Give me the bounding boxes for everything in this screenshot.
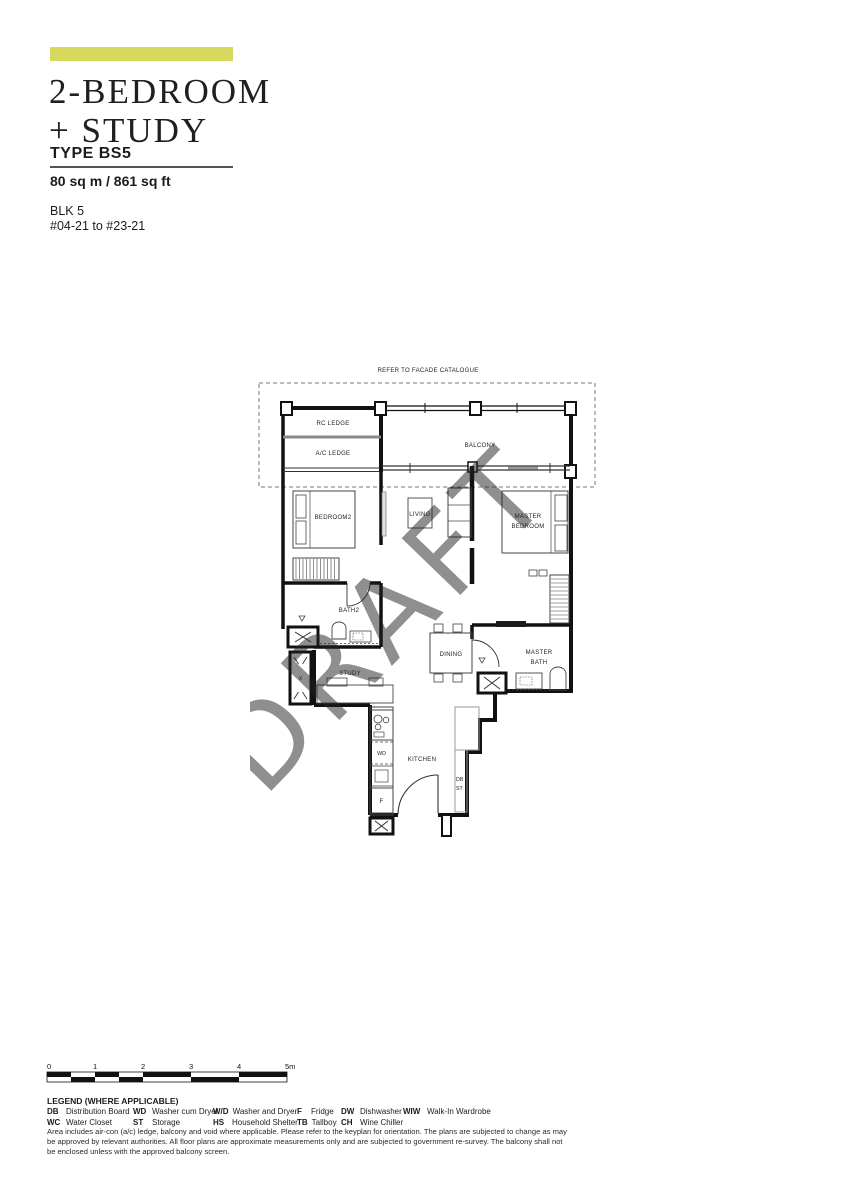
disclaimer-text: Area includes air-con (a/c) ledge, balco… bbox=[47, 1127, 569, 1157]
legend-entry: WDWasher cum Dryer bbox=[133, 1107, 218, 1118]
legend-desc: Storage bbox=[152, 1118, 180, 1127]
db-label: DB bbox=[456, 777, 464, 783]
legend-column: DWDishwasher CHWine Chiller bbox=[341, 1107, 403, 1129]
facade-note-label: REFER TO FACADE CATALOGUE bbox=[377, 368, 478, 374]
kitchen-label: KITCHEN bbox=[408, 757, 436, 763]
bedroom2-label: BEDROOM2 bbox=[315, 515, 352, 521]
legend: LEGEND (WHERE APPLICABLE) DBDistribution… bbox=[47, 1096, 817, 1130]
scale-bar-segments bbox=[47, 1072, 287, 1082]
legend-column: W/DWasher and Dryer HSHousehold Shelter bbox=[213, 1107, 298, 1129]
legend-abbr: DB bbox=[47, 1107, 62, 1116]
floorplan-drawing: REFER TO FACADE CATALOGUE bbox=[250, 355, 600, 850]
unit-range: #04-21 to #23-21 bbox=[50, 219, 145, 233]
st-label: ST bbox=[456, 786, 464, 792]
legend-desc: Washer and Dryer bbox=[233, 1107, 298, 1116]
legend-abbr: ST bbox=[133, 1118, 148, 1127]
master-bath-label-2: BATH bbox=[531, 660, 548, 666]
db-st-closet bbox=[455, 707, 479, 812]
legend-entry: DBDistribution Board bbox=[47, 1107, 130, 1118]
divider-rule bbox=[50, 166, 233, 168]
legend-entry: WIWWalk-In Wardrobe bbox=[403, 1107, 491, 1118]
legend-desc: Household Shelter bbox=[232, 1118, 298, 1127]
scale-4: 4 bbox=[237, 1062, 241, 1071]
legend-abbr: WC bbox=[47, 1118, 62, 1127]
scale-3: 3 bbox=[189, 1062, 193, 1071]
legend-column: WDWasher cum Dryer STStorage bbox=[133, 1107, 218, 1129]
scale-5m: 5m bbox=[285, 1062, 295, 1071]
fridge-label: F bbox=[380, 799, 384, 805]
legend-desc: Wine Chiller bbox=[360, 1118, 403, 1127]
scale-2: 2 bbox=[141, 1062, 145, 1071]
scale-bar: 0 1 2 3 4 5m bbox=[45, 1060, 305, 1088]
legend-desc: Fridge bbox=[311, 1107, 334, 1116]
legend-desc: Distribution Board bbox=[66, 1107, 130, 1116]
legend-desc: Tallboy bbox=[312, 1118, 337, 1127]
legend-desc: Walk-In Wardrobe bbox=[427, 1107, 491, 1116]
facade-zone: REFER TO FACADE CATALOGUE bbox=[259, 368, 595, 487]
legend-column: DBDistribution Board WCWater Closet bbox=[47, 1107, 130, 1129]
legend-abbr: HS bbox=[213, 1118, 228, 1127]
block-number: BLK 5 bbox=[50, 204, 84, 218]
unit-area: 80 sq m / 861 sq ft bbox=[50, 173, 171, 189]
legend-entry: FFridge bbox=[297, 1107, 337, 1118]
legend-title: LEGEND (WHERE APPLICABLE) bbox=[47, 1096, 178, 1106]
rc-ledge-label: RC LEDGE bbox=[316, 421, 349, 427]
legend-column: FFridge TBTallboy bbox=[297, 1107, 337, 1129]
ac-ledge-label: A/C LEDGE bbox=[316, 451, 351, 457]
washer-dryer-label: WD bbox=[377, 751, 386, 757]
legend-abbr: TB bbox=[297, 1118, 308, 1127]
accent-bar bbox=[50, 47, 233, 61]
scale-1: 1 bbox=[93, 1062, 97, 1071]
unit-type-label: TYPE BS5 bbox=[50, 145, 131, 163]
legend-abbr: CH bbox=[341, 1118, 356, 1127]
legend-abbr: WIW bbox=[403, 1107, 423, 1116]
page-title: 2-BEDROOM + STUDY bbox=[49, 72, 271, 150]
legend-desc: Washer cum Dryer bbox=[152, 1107, 218, 1116]
scale-0: 0 bbox=[47, 1062, 51, 1071]
legend-entry: DWDishwasher bbox=[341, 1107, 403, 1118]
legend-abbr: F bbox=[297, 1107, 307, 1116]
dining-label: DINING bbox=[440, 652, 463, 658]
legend-abbr: W/D bbox=[213, 1107, 229, 1116]
legend-entry: W/DWasher and Dryer bbox=[213, 1107, 298, 1118]
legend-desc: Dishwasher bbox=[360, 1107, 402, 1116]
legend-abbr: WD bbox=[133, 1107, 148, 1116]
master-bath-label-1: MASTER bbox=[526, 650, 553, 656]
title-line1: 2-BEDROOM bbox=[49, 72, 271, 111]
scale-bar-labels: 0 1 2 3 4 5m bbox=[47, 1062, 295, 1071]
legend-abbr: DW bbox=[341, 1107, 356, 1116]
legend-column: WIWWalk-In Wardrobe bbox=[403, 1107, 491, 1118]
legend-desc: Water Closet bbox=[66, 1118, 112, 1127]
floorplan-page: 2-BEDROOM + STUDY TYPE BS5 80 sq m / 861… bbox=[0, 0, 857, 1200]
